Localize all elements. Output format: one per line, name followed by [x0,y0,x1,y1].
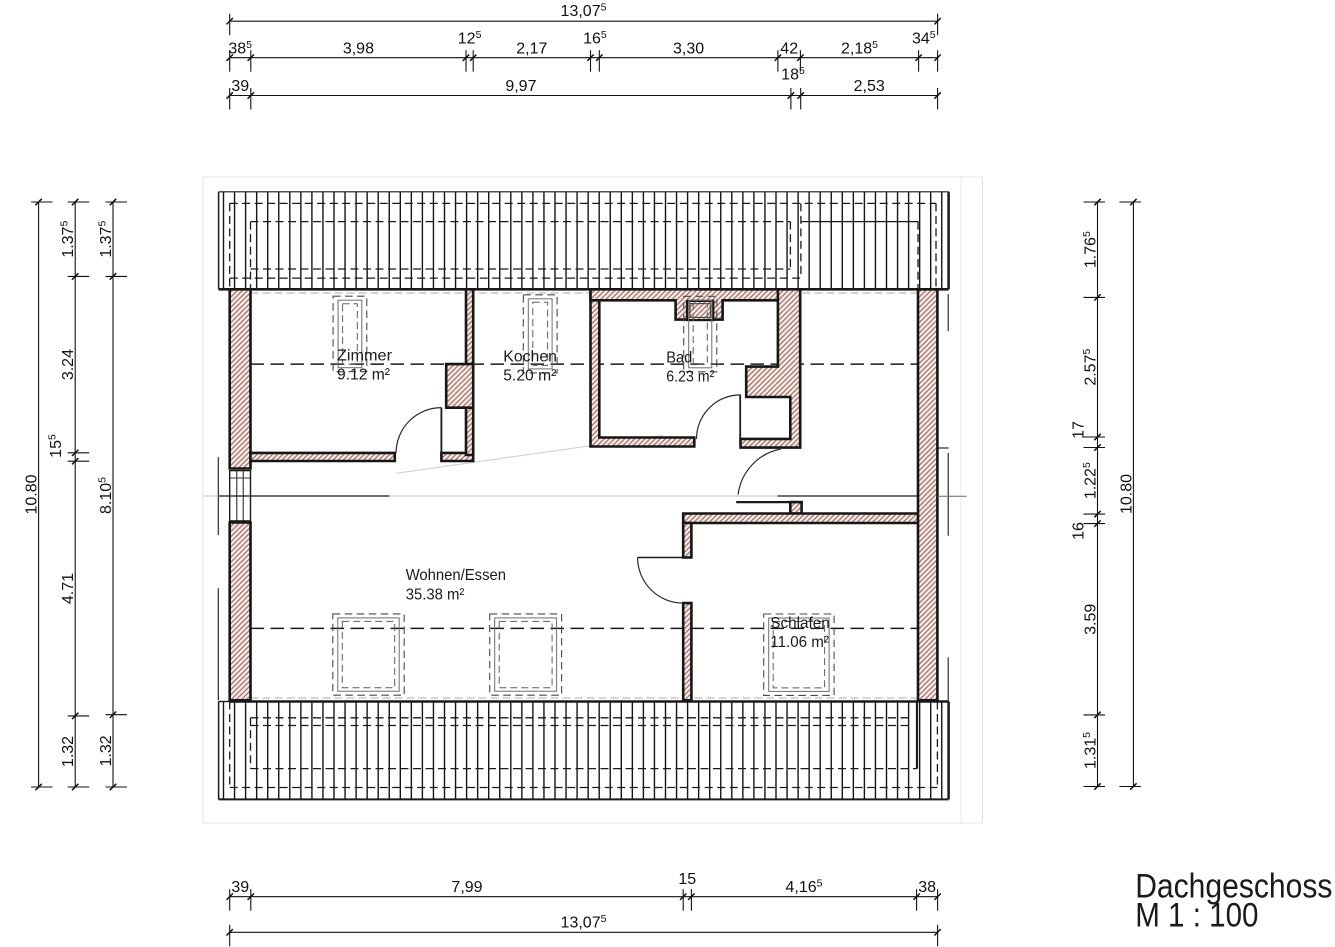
svg-text:3,30: 3,30 [673,40,704,57]
svg-text:2,53: 2,53 [854,78,885,95]
svg-text:15: 15 [678,871,696,888]
svg-text:6.23 m²: 6.23 m² [666,368,715,385]
svg-text:17: 17 [1071,421,1088,439]
svg-text:1.32: 1.32 [60,736,77,767]
svg-text:3,98: 3,98 [343,40,374,57]
svg-text:9,97: 9,97 [505,78,536,95]
svg-text:13,075: 13,075 [561,913,607,932]
svg-text:4.71: 4.71 [60,573,77,604]
svg-text:3.24: 3.24 [60,349,77,380]
svg-text:11.06 m²: 11.06 m² [770,634,829,651]
svg-text:2,17: 2,17 [516,40,547,57]
svg-text:1.32: 1.32 [98,735,115,766]
svg-text:16: 16 [1071,522,1088,540]
svg-text:Wohnen/Essen: Wohnen/Essen [406,567,506,584]
svg-text:5.20 m²: 5.20 m² [503,367,557,384]
svg-text:38: 38 [918,879,936,896]
svg-text:10.80: 10.80 [24,474,41,514]
svg-text:Bad: Bad [666,350,692,367]
svg-text:39: 39 [231,78,249,95]
svg-text:3.59: 3.59 [1083,604,1100,635]
svg-text:7,99: 7,99 [451,879,482,896]
svg-text:Kochen: Kochen [503,349,557,366]
svg-text:13,075: 13,075 [561,2,607,21]
svg-text:Schlafen: Schlafen [770,615,829,632]
svg-text:9.12 m²: 9.12 m² [337,367,391,384]
svg-text:10.80: 10.80 [1118,474,1135,514]
svg-text:Zimmer: Zimmer [337,348,393,365]
svg-text:42: 42 [780,40,798,57]
svg-text:M 1 : 100: M 1 : 100 [1135,897,1258,935]
svg-text:35.38 m²: 35.38 m² [406,586,465,603]
svg-text:39: 39 [231,879,249,896]
